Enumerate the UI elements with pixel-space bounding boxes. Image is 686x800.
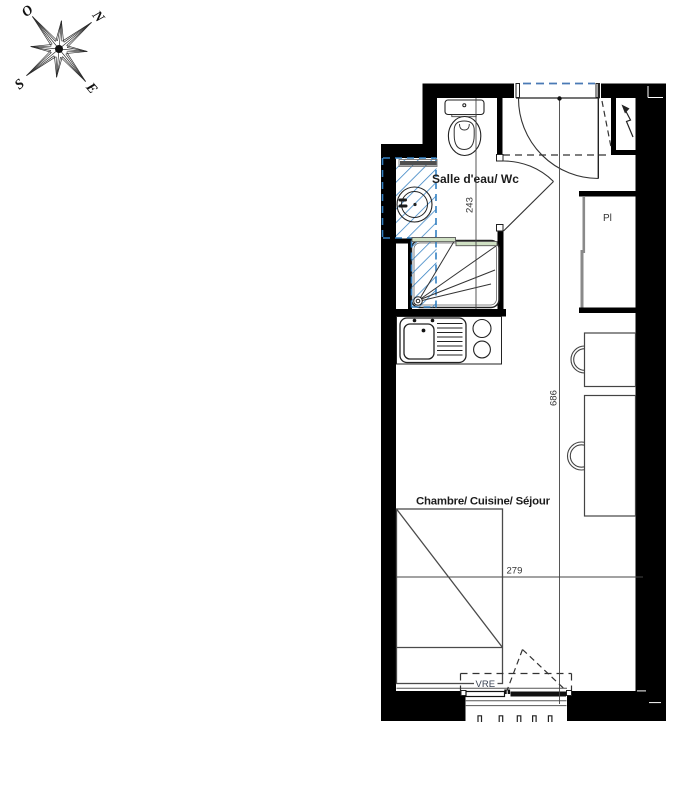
svg-text:VRE: VRE — [476, 679, 496, 690]
svg-text:686: 686 — [549, 390, 560, 406]
svg-text:243: 243 — [465, 197, 476, 213]
svg-text:279: 279 — [507, 566, 523, 577]
svg-text:Chambre/ Cuisine/ Séjour: Chambre/ Cuisine/ Séjour — [416, 496, 551, 508]
svg-text:Pl: Pl — [603, 213, 612, 224]
